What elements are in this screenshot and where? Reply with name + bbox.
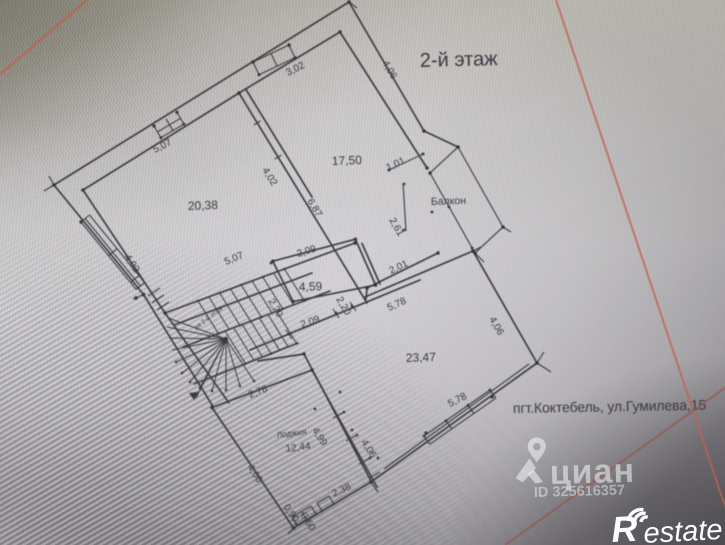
svg-text:ID 325616357: ID 325616357: [534, 483, 625, 501]
svg-text:estate: estate: [643, 514, 724, 545]
